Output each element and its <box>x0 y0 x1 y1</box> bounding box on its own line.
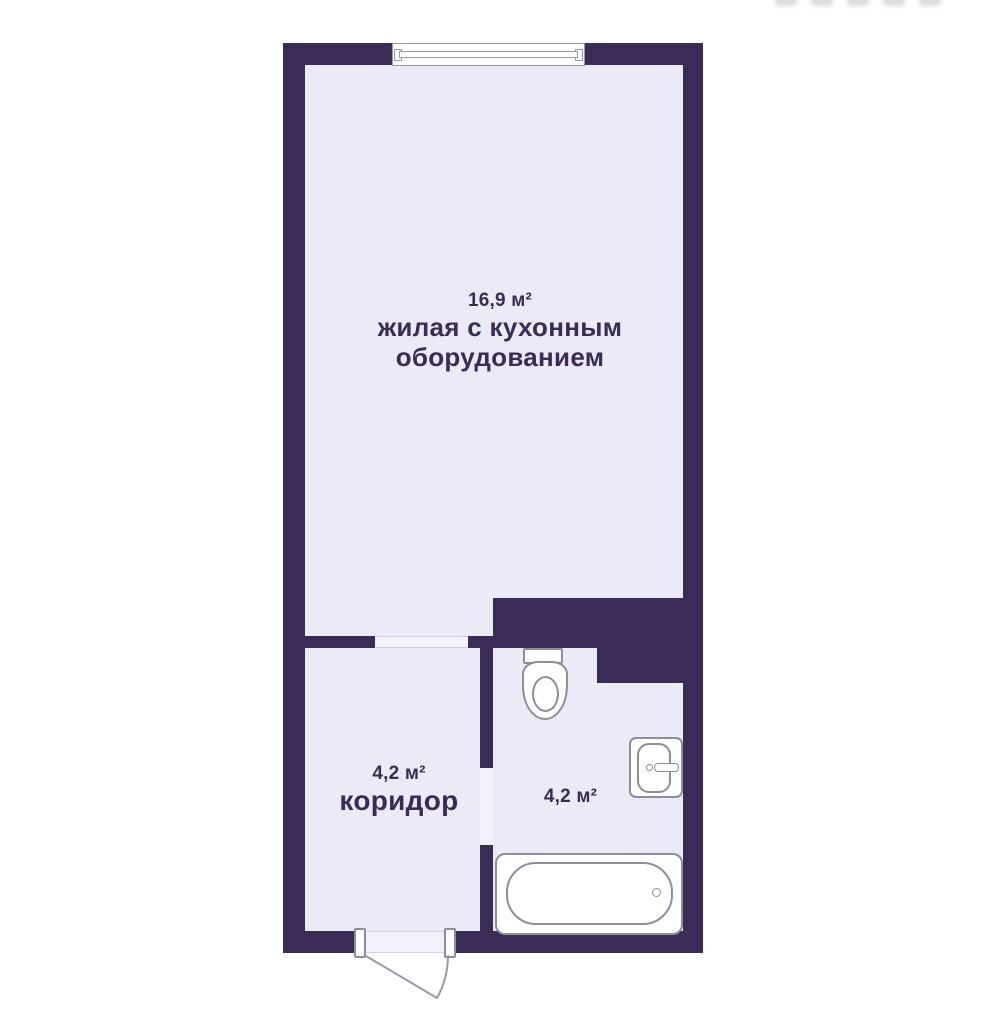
corridor-name: коридор <box>318 786 480 817</box>
corridor-top-wall <box>305 636 375 648</box>
living-room-doorway <box>375 636 468 648</box>
window-glass-bar <box>399 51 578 58</box>
watermark-fragment <box>811 0 833 6</box>
floor-plan: 16,9 м² жилая с кухонным оборудованием 4… <box>0 0 990 1030</box>
living-room-label: 16,9 м² жилая с кухонным оборудованием <box>340 290 660 371</box>
living-room-name: оборудованием <box>340 343 660 372</box>
corridor-top-wall <box>468 636 493 648</box>
sink-faucet <box>654 763 679 772</box>
corridor-bathroom-wall <box>480 845 493 931</box>
living-room-name: жилая с кухонным <box>340 313 660 342</box>
watermark-fragment <box>847 0 869 6</box>
corridor-bathroom-wall <box>480 648 493 768</box>
corridor-label: 4,2 м² коридор <box>318 763 480 817</box>
bathroom-area: 4,2 м² <box>528 786 613 808</box>
living-room-area: 16,9 м² <box>340 290 660 312</box>
cropped-watermark <box>775 0 945 10</box>
bathtub-drain <box>652 888 661 897</box>
entrance-door-swing-icon <box>350 950 480 1020</box>
watermark-fragment <box>919 0 941 6</box>
corridor-area: 4,2 м² <box>318 763 480 785</box>
toilet-seat <box>532 676 559 712</box>
sink-drain <box>646 764 653 771</box>
bathtub-basin <box>506 862 673 925</box>
bathroom-label: 4,2 м² <box>528 786 613 808</box>
watermark-fragment <box>883 0 905 6</box>
living-room-floor-extension <box>305 598 493 636</box>
bathroom-doorway <box>480 768 493 845</box>
watermark-fragment <box>775 0 797 6</box>
